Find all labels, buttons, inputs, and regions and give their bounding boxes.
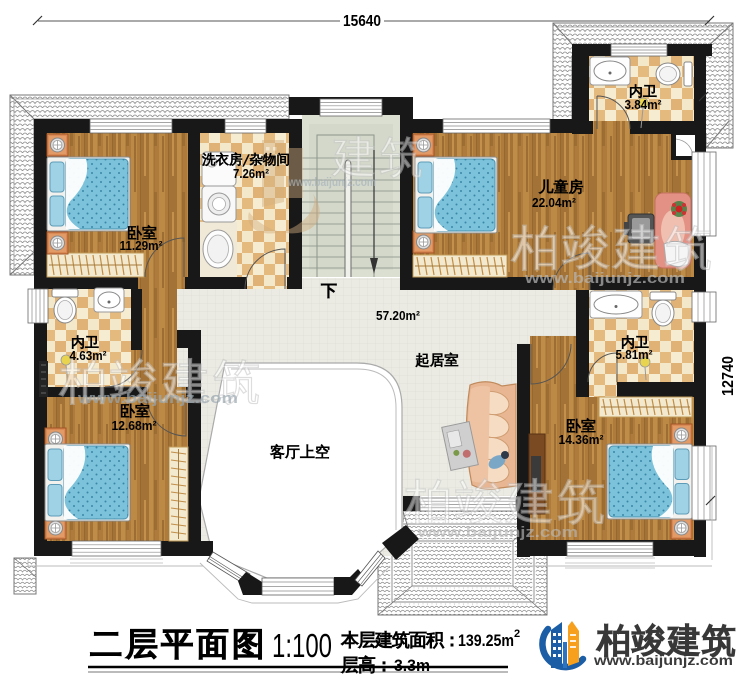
svg-text:www.baijunjz.com: www.baijunjz.com [287, 177, 376, 189]
svg-text:www.baijunjz.com: www.baijunjz.com [417, 524, 578, 541]
svg-text:1:100: 1:100 [272, 627, 332, 664]
svg-text:2: 2 [514, 628, 520, 640]
svg-text:12.68m²: 12.68m² [112, 419, 157, 433]
svg-text:139.25m: 139.25m [458, 631, 514, 650]
svg-text:3.3m: 3.3m [394, 656, 430, 675]
svg-text:11.29m²: 11.29m² [120, 239, 163, 253]
svg-text:4.63m²: 4.63m² [70, 349, 107, 363]
svg-text:22.04m²: 22.04m² [532, 196, 576, 210]
svg-text:57.20m²: 57.20m² [376, 309, 420, 323]
svg-text:www.baijunjz.com: www.baijunjz.com [524, 270, 685, 287]
svg-text:3.84m²: 3.84m² [625, 98, 662, 112]
svg-text:www.baijunjz.com: www.baijunjz.com [593, 653, 733, 668]
svg-text:15640: 15640 [343, 13, 381, 30]
svg-text:5.81m²: 5.81m² [616, 348, 653, 362]
svg-text:12740: 12740 [720, 356, 737, 396]
svg-text:14.36m²: 14.36m² [559, 433, 604, 447]
svg-text:www.baijunjz.com: www.baijunjz.com [77, 390, 238, 407]
svg-text:7.26m²: 7.26m² [233, 167, 269, 181]
